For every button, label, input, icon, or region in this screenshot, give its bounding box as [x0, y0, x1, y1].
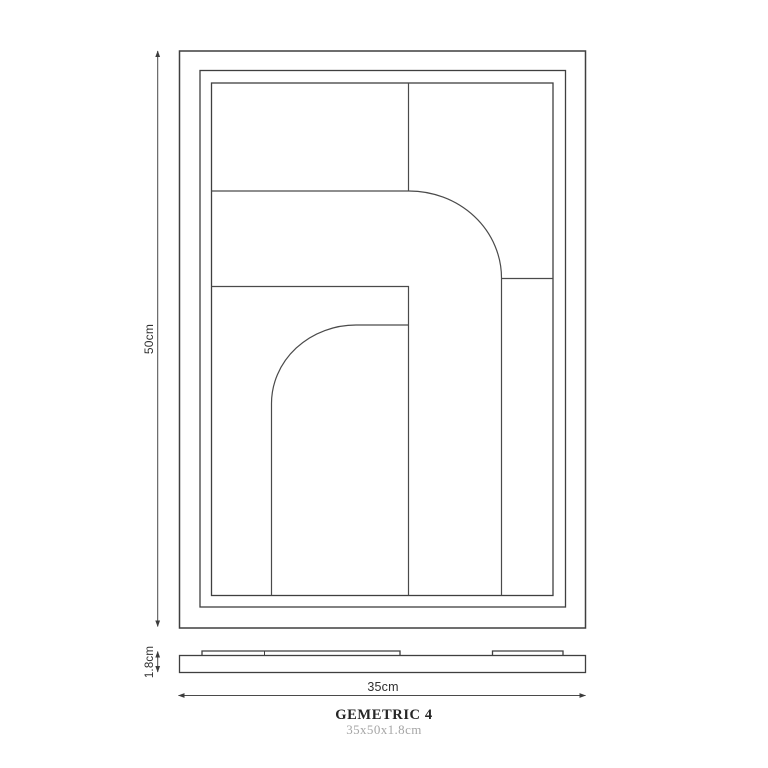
- frame-outer-edge: [180, 51, 586, 628]
- side-view-board: [180, 656, 586, 673]
- product-size-subtitle: 35x50x1.8cm: [264, 722, 504, 738]
- band-outer-curve: [212, 191, 502, 596]
- front-view-panel-dividers: [212, 83, 554, 596]
- technical-drawing-page: 50cm 1.8cm 35cm GEMETRIC 4 35x50x1.8cm: [0, 0, 768, 768]
- dimension-lines: [158, 51, 586, 696]
- drawing-canvas: [0, 0, 768, 768]
- side-view-batten-left: [202, 651, 400, 656]
- side-view: [180, 651, 586, 673]
- width-dimension-label: 35cm: [353, 680, 413, 694]
- hook-curve: [272, 325, 409, 596]
- front-view: [180, 51, 586, 628]
- band-inner-corner: [212, 287, 409, 596]
- depth-dimension-label: 1.8cm: [143, 640, 157, 684]
- frame-inner-edge: [200, 71, 566, 608]
- height-dimension-label: 50cm: [142, 309, 156, 369]
- side-view-batten-right: [493, 651, 564, 656]
